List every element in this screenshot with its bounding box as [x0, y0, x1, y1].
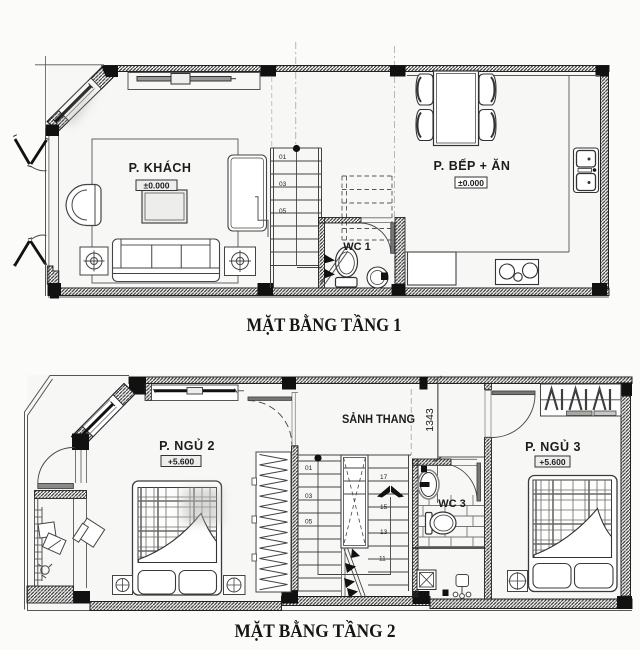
svg-text:05: 05 — [279, 208, 287, 215]
svg-text:MẶT BẰNG TẦNG 1: MẶT BẰNG TẦNG 1 — [247, 314, 402, 336]
svg-text:±0.000: ±0.000 — [458, 178, 484, 188]
svg-text:+5.600: +5.600 — [168, 456, 195, 466]
svg-text:±0.000: ±0.000 — [144, 181, 170, 191]
svg-text:P. NGỦ 2: P. NGỦ 2 — [159, 438, 215, 453]
svg-text:+5.600: +5.600 — [539, 457, 566, 467]
svg-text:WC 3: WC 3 — [438, 498, 466, 510]
svg-text:1343: 1343 — [424, 408, 436, 432]
svg-text:15: 15 — [380, 504, 388, 511]
svg-text:01: 01 — [305, 465, 313, 472]
svg-text:13: 13 — [380, 529, 388, 536]
svg-text:05: 05 — [305, 519, 313, 526]
svg-text:11: 11 — [379, 556, 386, 563]
svg-text:P. BẾP + ĂN: P. BẾP + ĂN — [434, 158, 511, 173]
svg-text:01: 01 — [279, 154, 287, 161]
svg-text:P. KHÁCH: P. KHÁCH — [129, 160, 192, 175]
svg-text:03: 03 — [279, 181, 287, 188]
svg-text:SẢNH THANG: SẢNH THANG — [342, 413, 415, 426]
svg-text:17: 17 — [380, 474, 388, 481]
svg-text:P. NGỦ 3: P. NGỦ 3 — [525, 439, 581, 454]
svg-text:03: 03 — [305, 493, 313, 500]
svg-text:MẶT BẰNG TẦNG 2: MẶT BẰNG TẦNG 2 — [235, 620, 396, 642]
